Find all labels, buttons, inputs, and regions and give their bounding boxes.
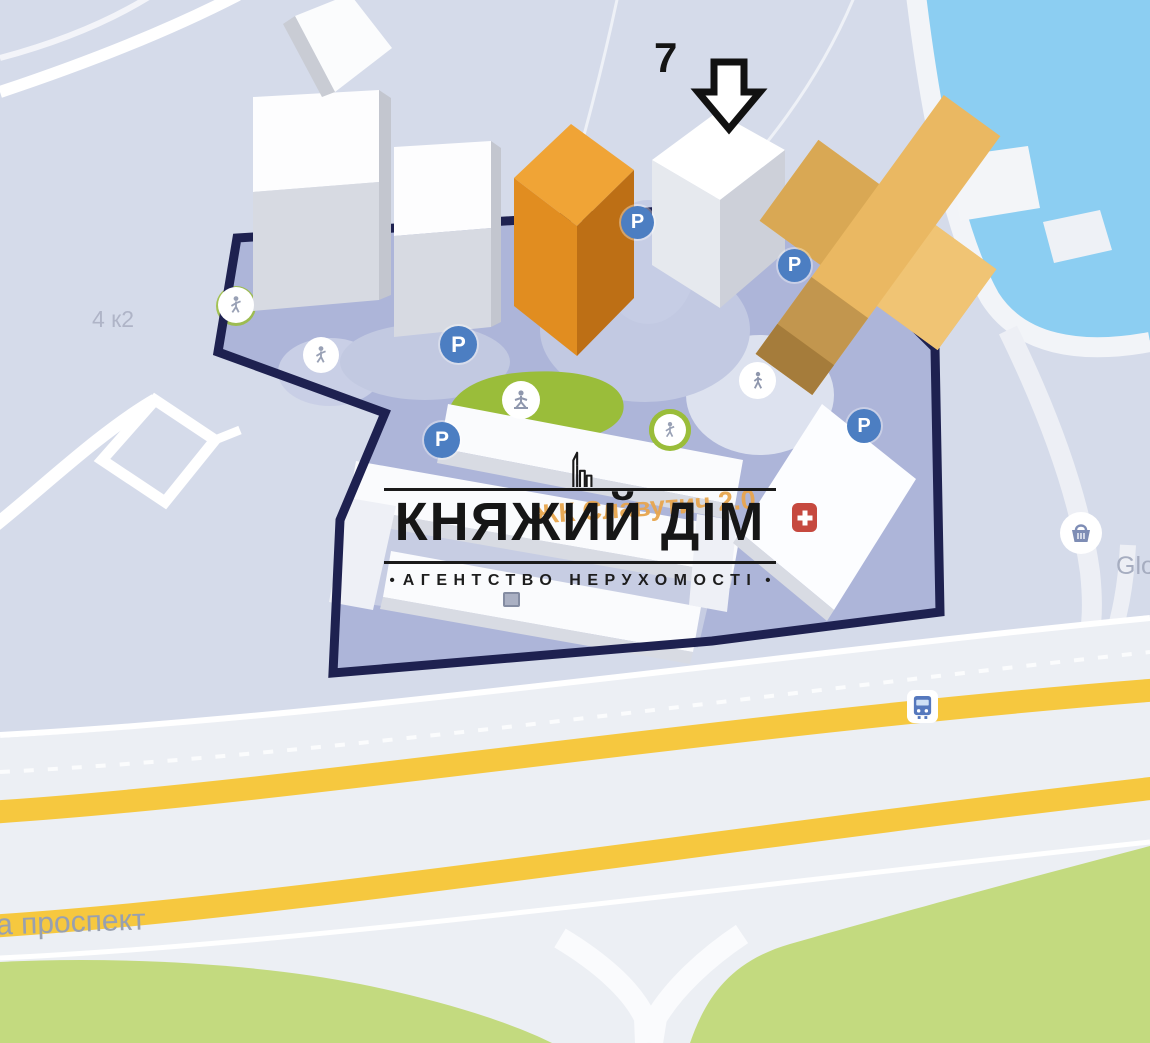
street-name-label: а проспект bbox=[0, 903, 146, 942]
parking-icon[interactable]: P bbox=[440, 326, 477, 363]
tower-white-1 bbox=[253, 90, 391, 311]
logo-divider-bottom bbox=[384, 561, 776, 564]
logo-subtitle-text: АГЕНТСТВО НЕРУХОМОСТІ bbox=[403, 572, 758, 590]
pedestrian-icon[interactable] bbox=[739, 362, 776, 399]
building-poi-icon[interactable] bbox=[503, 592, 520, 607]
playground-icon[interactable] bbox=[303, 337, 339, 373]
medical-cross-icon[interactable] bbox=[792, 503, 817, 532]
playground-icon[interactable] bbox=[654, 414, 686, 446]
parking-letter: P bbox=[788, 254, 801, 277]
tower-white-2 bbox=[394, 141, 501, 337]
parking-letter: P bbox=[857, 415, 870, 438]
bullet-icon: • bbox=[389, 572, 394, 589]
playground-icon[interactable] bbox=[502, 381, 540, 419]
bullet-icon: • bbox=[765, 572, 770, 589]
logo-divider-top bbox=[384, 488, 776, 491]
target-building-number: 7 bbox=[654, 34, 677, 82]
parking-letter: P bbox=[631, 211, 644, 234]
shopping-basket-icon[interactable] bbox=[1060, 512, 1102, 554]
store-name-label: Glo bbox=[1116, 552, 1150, 581]
map-screenshot: 7 4 к2 а проспект Glo ЖК Славутич 2.0 P … bbox=[0, 0, 1150, 1043]
agency-logo: КНЯЖИЙ ДІМ • АГЕНТСТВО НЕРУХОМОСТІ • bbox=[384, 446, 776, 590]
logo-skyline-icon bbox=[384, 446, 776, 488]
building-code-label: 4 к2 bbox=[92, 306, 134, 333]
bus-stop-icon[interactable] bbox=[907, 690, 938, 723]
parking-icon[interactable]: P bbox=[847, 409, 881, 443]
logo-subtitle: • АГЕНТСТВО НЕРУХОМОСТІ • bbox=[384, 572, 776, 590]
parking-icon[interactable]: P bbox=[778, 249, 811, 282]
logo-title: КНЯЖИЙ ДІМ bbox=[384, 492, 776, 552]
parking-letter: P bbox=[451, 332, 466, 358]
parking-icon[interactable]: P bbox=[621, 206, 654, 239]
playground-icon[interactable] bbox=[218, 287, 254, 323]
